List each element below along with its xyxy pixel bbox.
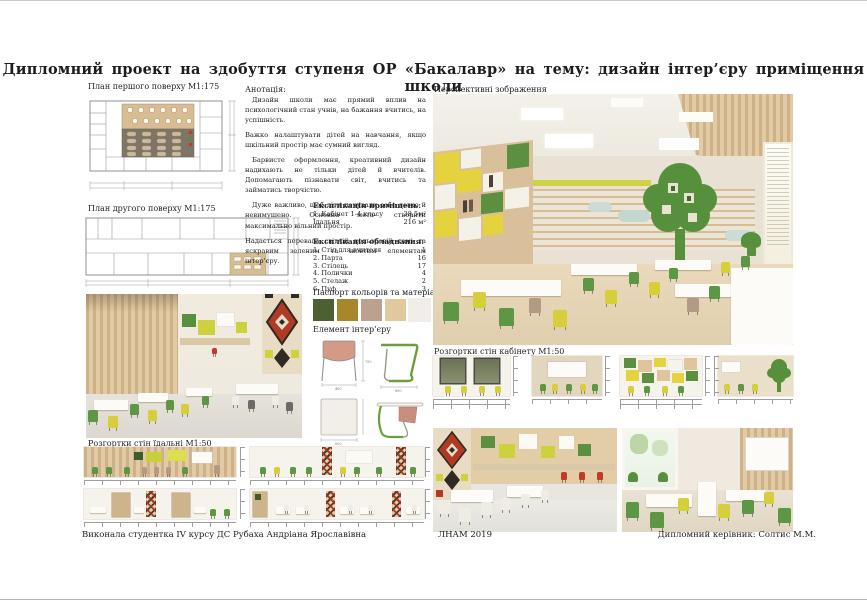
chair-shape [348,505,353,511]
shelf-box [435,209,457,238]
chair-shape [274,467,280,474]
dimension-line [425,489,430,519]
books [469,199,473,211]
chair-shape [368,505,373,511]
desk-side-top [377,403,423,406]
dimension-line [240,489,245,519]
cloud-shape [618,210,650,222]
chair-shape [678,498,689,511]
chair-shape [459,508,471,522]
chair-shape [662,386,668,393]
equipment-table-title: Експлікація обладнання: [313,237,424,246]
table [655,260,711,270]
shelf-box [642,373,654,383]
dining-elevation-3 [84,489,236,519]
chair-shape [232,396,239,405]
plant-pot [747,247,756,256]
dining-render-2 [433,428,617,532]
shelf-box [668,360,682,371]
classroom-render-2 [622,428,793,532]
red-stool [561,472,567,480]
chair-shape [124,467,130,474]
stool-shape [142,467,147,474]
stool-shape [214,465,220,474]
chair-shape [521,494,530,505]
chair-shape [629,272,639,284]
ethno-ornament-panel [262,294,302,374]
color-swatch-3 [361,299,382,321]
table [90,507,106,513]
plant [628,472,638,482]
chair-shape [354,467,360,474]
shelf-box [654,358,666,367]
chair-shape [724,384,730,391]
chair-shape [306,467,312,474]
chair-shape [148,410,157,421]
table [186,388,212,396]
chair-shape [286,402,293,411]
desk-front-view [321,399,357,435]
table [94,400,128,410]
dining-elevation-4 [250,489,424,519]
rooms-table-title: Експлікація приміщень: [313,201,421,210]
chair-shape [495,386,501,393]
shelf-box [624,358,636,368]
chair-shape [130,404,139,415]
shelf-box [435,184,455,210]
window [622,428,678,490]
chair-shape [709,286,720,299]
dimension-line [705,356,710,396]
ornament-strip [396,447,406,475]
color-swatch-4 [385,299,406,321]
second-floor-plan-label: План другого поверху М1:175 [88,204,216,213]
cabinet-elevation-windows [433,356,510,396]
shelf-box [483,149,505,172]
shelf-box [483,172,503,192]
dining-elevation-2 [250,447,424,477]
table [571,264,637,275]
first-floor-plan-drawing [84,91,239,198]
dining-elevations [84,447,428,527]
ceiling-light-panel [659,138,699,150]
shelf-box [657,370,670,381]
chair-shape [742,500,754,514]
main-perspective-render [433,94,793,345]
shelf-box [519,434,537,449]
books [463,200,467,212]
dimension-line [84,480,236,485]
cabinet-elevation-tree-wall [718,356,793,396]
red-stool [597,472,603,480]
chair-shape [340,467,346,474]
divider-table [698,482,716,516]
first-floor-plan-label: План першого поверху М1:175 [88,82,219,91]
chair-shape [461,386,467,393]
chair-shape [592,384,598,391]
dimension-line [605,356,610,396]
stool-shape [154,467,159,474]
green-cabinet [182,314,196,327]
whiteboard [746,438,788,470]
dimension-line [250,522,424,527]
desk-side-panel [399,407,417,423]
chair-shape [210,509,216,516]
dimension-line [620,404,702,409]
chair-shape [738,384,744,391]
annotation-paragraph: Дизайн школи має прямий вплив на психоло… [245,95,426,125]
chair-shape [649,282,660,295]
chair-shape [290,467,296,474]
door-glass [255,494,261,500]
chair-shape [481,502,492,515]
equipment-table: 1. Стіл для вчителя1 2. Парта16 3. Стіле… [313,247,426,294]
chair-shape [88,410,98,422]
window-greenery [630,434,648,454]
dimension-line [240,447,245,477]
ornament-strip [322,447,332,475]
chair-shape [626,502,639,518]
stool-shape [166,467,171,474]
furniture-element-drawings: 400 750 800 600 [311,335,431,447]
chair-width-dim: 400 [335,387,341,391]
shelf-box [499,444,515,458]
red-stool [579,472,585,480]
chair-shape [410,467,416,474]
shelf-box [684,358,697,370]
shelf-box [459,216,481,241]
chair-shape [473,292,486,308]
yellow-block [146,452,162,462]
chair-shape [202,396,209,405]
white-board [192,452,212,463]
chair-shape [376,467,382,474]
annotation-paragraph: Барвисте оформлення, креативний дизайн н… [245,155,426,195]
chair-shape [628,386,634,393]
counter [180,338,250,345]
chair-shape [108,416,118,428]
shelf-box [435,151,459,184]
whiteboard [722,362,740,372]
chair-shape [443,302,459,321]
chair-shape [224,509,230,516]
books [489,175,493,187]
table-row: Їдальня 216 м² [313,219,426,227]
shelf-box [578,444,591,456]
chair-shape [764,492,774,504]
chair-shape [166,400,174,410]
cabinet-elevations-label: Розгортки стін кабінету М1:50 [434,347,564,356]
cabinet-elevation-shelf-wall [620,356,702,396]
chair-shape [552,384,558,391]
chair-shape [260,467,266,474]
chair-shape [778,508,791,523]
chair-shape [272,396,279,405]
chair-shape [650,512,664,528]
chair-shape [106,467,112,474]
table [138,393,168,402]
table [236,384,278,394]
dimension-line [250,480,424,485]
footer-student: Виконала студентка IV курсу ДС Рубаха Ан… [82,530,366,540]
tree-shelf-elevation [766,358,792,392]
shelf-box [541,446,555,458]
color-swatch-1 [313,299,334,321]
chair-shape [529,298,541,313]
chair-shape [741,256,750,267]
plant [741,232,761,248]
dimension-line [714,356,719,396]
table [134,507,144,513]
dimension-line [532,399,602,404]
chair-shape [721,262,730,273]
ceiling-light-panel [679,112,713,122]
chair-height-dim: 750 [365,360,371,364]
shelf-box [457,168,481,193]
diploma-presentation-board: Дипломний проект на здобуття ступеня ОР … [0,0,867,600]
desk-side-dim: 800 [395,389,401,393]
shelf-box [507,142,529,169]
dining-elevation-1 [84,447,236,477]
shelf-box [483,214,503,236]
shelf-box [686,371,698,381]
shelf-box [505,208,529,233]
chair-shape [304,505,309,511]
dimension-line [425,447,430,477]
chair-shape [284,505,289,511]
chair-shape [580,384,586,391]
dimension-line [84,522,236,527]
annotation-title: Анотація: [245,85,286,94]
wood-cabinet [172,493,190,517]
window [475,359,499,383]
chair-shape [248,400,255,409]
plant [658,472,668,482]
palette-title: Паспорт кольорів та матеріалів [313,288,447,297]
shelf-box [481,192,503,215]
chair-shape [499,308,514,326]
ceiling-shadow [86,294,178,312]
shelf-box [672,373,684,383]
white-board [346,451,372,463]
footer-academy: ЛНАМ 2019 [438,530,492,540]
chair-shape [553,310,567,327]
chair-shape [718,504,730,518]
shelf-box [626,370,639,381]
window [441,359,465,383]
white-cabinet [217,313,234,326]
chair-shape [182,467,188,474]
yellow-block [168,450,186,461]
desk-width-dim: 600 [335,442,341,446]
chair-shape [439,500,450,514]
shelf-box [461,148,481,168]
dimension-line [433,404,510,409]
color-swatch-2 [337,299,358,321]
shelf-box [559,436,574,449]
room-name: Їдальня [313,219,340,227]
chair-front-view [323,341,355,361]
window-greenery [652,440,668,456]
whiteboard [548,362,586,377]
shelf-box [505,168,529,187]
ornament-strip [146,491,156,517]
chair-shape [566,384,572,391]
annotation-paragraph: Важко налаштувати дітей на навчання, якщ… [245,130,426,150]
chair-shape [445,386,451,393]
wood-cabinet [112,493,130,517]
chair-shape [687,298,699,312]
red-stool [212,348,217,354]
rooms-table: 1. Кабінет 1-4 класу 38,5м² Їдальня 216 … [313,211,426,227]
green-block [134,452,143,460]
footer-supervisor: Дипломний керівник: Солтис М.М. [658,530,816,540]
chair-shape [412,505,417,511]
chair-shape [92,467,98,474]
shelf-box [481,436,495,448]
chair-shape [541,490,549,500]
perspective-label: Перспективні зображення [434,85,547,94]
shelf-box [638,360,652,372]
foreground-table [731,268,793,345]
dining-serving-area [122,104,194,129]
tree-shelf [638,159,723,267]
counter [473,464,615,470]
ceiling-light-panel [611,98,643,107]
yellow-cabinet-small [236,322,247,333]
chair-shape [583,278,594,291]
window [763,142,793,266]
chair-shape [479,386,485,393]
table [451,490,493,502]
color-swatch-5 [409,299,430,321]
chair-shape [181,404,189,414]
table [194,507,206,513]
dimension-line [718,399,793,404]
yellow-wall-stripe [533,180,651,186]
room-area: 216 м² [404,219,426,227]
dining-hall-render [86,294,302,438]
shelf-box [505,186,529,209]
ornament-strip [326,491,335,517]
cabinet-elevations [433,356,793,418]
yellow-cabinet [198,320,215,335]
chair-shape [501,498,511,510]
dimension-line [513,356,518,396]
cloud-shape [588,202,612,212]
chair-shape [752,384,758,391]
window-blinds [767,148,789,248]
ornament-strip [392,491,401,517]
chair-shape [540,384,546,391]
chair-shape [644,386,650,393]
ceiling-light-panel [545,134,593,148]
cabinet-elevation-whiteboard [532,356,602,396]
chair-shape [669,268,678,279]
interior-element-title: Елемент інтер’єру [313,325,391,334]
ceiling-light-panel [521,108,563,120]
chair-shape [605,290,617,304]
chair-shape [678,386,684,393]
